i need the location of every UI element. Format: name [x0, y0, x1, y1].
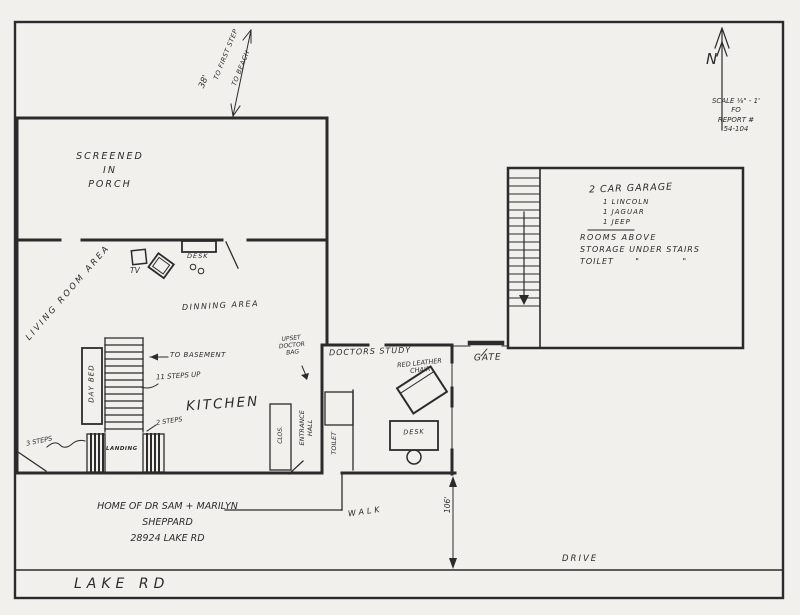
porch-room-label: SCREENED IN PORCH	[55, 150, 165, 191]
garage-note-toilet: TOILET " "	[580, 257, 687, 267]
garage-car-jeep: 1 JEEP	[603, 218, 631, 227]
closet-label: CLOS.	[277, 415, 285, 455]
doctor-bag-label: UPSET DOCTOR BAG	[274, 334, 310, 358]
landing-label: LANDING	[106, 446, 138, 453]
garage-note-storage: STORAGE UNDER STAIRS	[580, 245, 700, 255]
to-basement-label: TO BASEMENT	[170, 351, 226, 360]
garage-note-rooms-above: ROOMS ABOVE	[580, 233, 657, 243]
tv-outline	[131, 249, 146, 264]
drive-label: DRIVE	[562, 554, 598, 565]
north-label: N	[706, 50, 717, 70]
garage-car-lincoln: 1 LINCOLN	[603, 198, 649, 207]
tv-label: TV	[130, 266, 140, 276]
caption-title: HOME OF DR SAM + MARILYN SHEPPARD 28924 …	[55, 499, 280, 547]
gate-label: GATE	[474, 353, 502, 366]
garage-car-jaguar: 1 JAGUAR	[603, 208, 645, 217]
day-bed-label: DAY BED	[87, 354, 96, 414]
doctor-bag-arrow	[301, 366, 309, 380]
living-chair-outline	[148, 253, 173, 278]
scale-note: SCALE ⅛" - 1' FO REPORT # 54-104	[690, 97, 782, 135]
main-stairs	[105, 338, 143, 432]
toilet-label: TOILET	[330, 423, 338, 463]
lake-road-label: LAKE RD	[74, 575, 169, 593]
front-depth-label: 106'	[443, 485, 453, 525]
floor-plan-page: SCREENED IN PORCH LIVING ROOM AREA DINNI…	[0, 0, 800, 615]
living-desk-label: DESK	[187, 252, 209, 260]
entrance-hall-label: ENTRANCE HALL	[299, 393, 315, 463]
